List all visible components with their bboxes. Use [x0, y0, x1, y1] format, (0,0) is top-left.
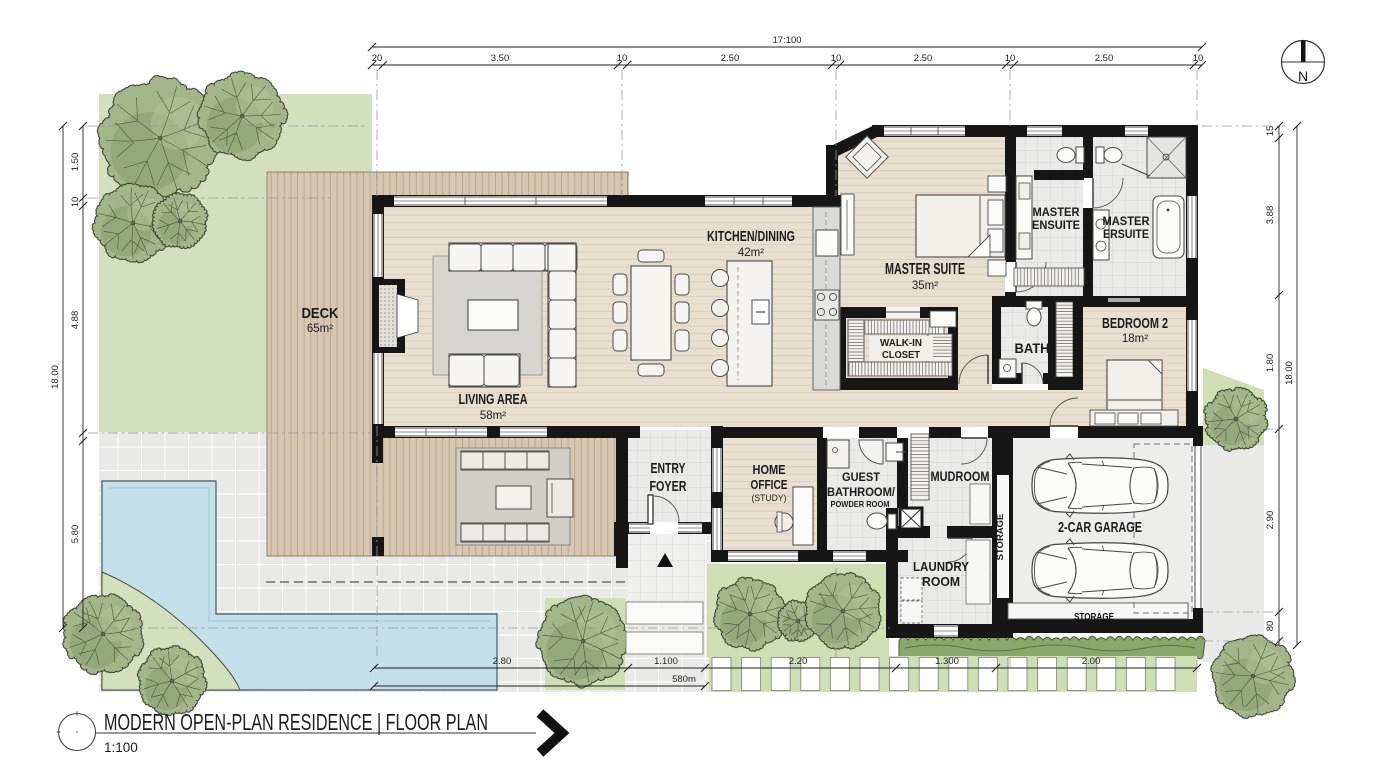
svg-text:80: 80: [1265, 621, 1276, 632]
svg-text:18.00: 18.00: [1284, 361, 1295, 385]
svg-text:N: N: [1298, 68, 1308, 84]
svg-text:STORAGE: STORAGE: [995, 514, 1006, 561]
svg-text:20: 20: [372, 53, 383, 64]
svg-text:ROOM: ROOM: [922, 574, 960, 589]
svg-text:GUEST: GUEST: [842, 470, 881, 484]
svg-text:MUDROOM: MUDROOM: [931, 469, 990, 484]
svg-text:10: 10: [1005, 53, 1016, 64]
svg-text:2-CAR GARAGE: 2-CAR GARAGE: [1058, 519, 1142, 536]
svg-text:FOYER: FOYER: [650, 479, 687, 495]
svg-text:10: 10: [1193, 53, 1204, 64]
svg-text:CLOSET: CLOSET: [882, 349, 921, 361]
svg-text:MODERN OPEN-PLAN RESIDENCE | F: MODERN OPEN-PLAN RESIDENCE | FLOOR PLAN: [104, 709, 488, 735]
svg-text:STORAGE: STORAGE: [1074, 611, 1114, 623]
svg-text:MASTER: MASTER: [1103, 216, 1151, 228]
svg-text:17:100: 17:100: [772, 35, 801, 46]
svg-text:42m²: 42m²: [738, 247, 764, 259]
svg-text:ERSUITE: ERSUITE: [1103, 229, 1149, 241]
svg-text:2.20: 2.20: [789, 656, 808, 667]
svg-text:WALK-IN: WALK-IN: [880, 337, 922, 349]
svg-text:15: 15: [1265, 126, 1276, 137]
svg-text:OFFICE: OFFICE: [751, 477, 788, 492]
svg-text:LIVING AREA: LIVING AREA: [459, 391, 528, 408]
svg-text:35m²: 35m²: [912, 280, 938, 292]
svg-text:1.80: 1.80: [1265, 354, 1276, 373]
svg-text:4.88: 4.88: [70, 311, 81, 330]
svg-text:BATHROOM/: BATHROOM/: [827, 485, 896, 499]
svg-text:ENTRY: ENTRY: [651, 461, 686, 477]
svg-text:BEDROOM 2: BEDROOM 2: [1102, 315, 1168, 332]
svg-text:2.80: 2.80: [493, 656, 512, 667]
svg-text:58m²: 58m²: [480, 410, 506, 422]
svg-text:3.50: 3.50: [491, 53, 510, 64]
svg-text:DECK: DECK: [302, 305, 339, 322]
svg-text:2.50: 2.50: [1095, 53, 1114, 64]
svg-text:KITCHEN/DINING: KITCHEN/DINING: [707, 228, 795, 245]
svg-text:(STUDY): (STUDY): [752, 493, 787, 504]
svg-text:ENSUITE: ENSUITE: [1032, 220, 1080, 232]
svg-text:2.00: 2.00: [1082, 656, 1101, 667]
svg-text:1:100: 1:100: [104, 740, 138, 755]
svg-text:5.80: 5.80: [70, 525, 81, 544]
svg-text:BATH: BATH: [1015, 341, 1050, 356]
svg-text:3.88: 3.88: [1265, 206, 1276, 225]
svg-text:2.90: 2.90: [1265, 511, 1276, 530]
svg-text:1.300: 1.300: [935, 656, 959, 667]
svg-text:MASTER SUITE: MASTER SUITE: [885, 261, 965, 278]
svg-text:10: 10: [617, 53, 628, 64]
svg-text:10: 10: [831, 53, 842, 64]
svg-text:2.50: 2.50: [914, 53, 933, 64]
svg-text:10: 10: [70, 197, 81, 208]
svg-text:1.50: 1.50: [70, 153, 81, 172]
svg-text:2.50: 2.50: [721, 53, 740, 64]
svg-text:1.100: 1.100: [654, 656, 678, 667]
svg-text:65m²: 65m²: [307, 323, 333, 335]
svg-text:18.00: 18.00: [50, 365, 61, 389]
svg-text:18m²: 18m²: [1122, 333, 1148, 345]
svg-text:HOME: HOME: [753, 462, 786, 477]
svg-text:LAUNDRY: LAUNDRY: [913, 559, 969, 574]
svg-text:580m: 580m: [672, 674, 696, 685]
svg-text:MASTER: MASTER: [1033, 207, 1081, 219]
svg-text:POWDER ROOM: POWDER ROOM: [831, 499, 890, 509]
